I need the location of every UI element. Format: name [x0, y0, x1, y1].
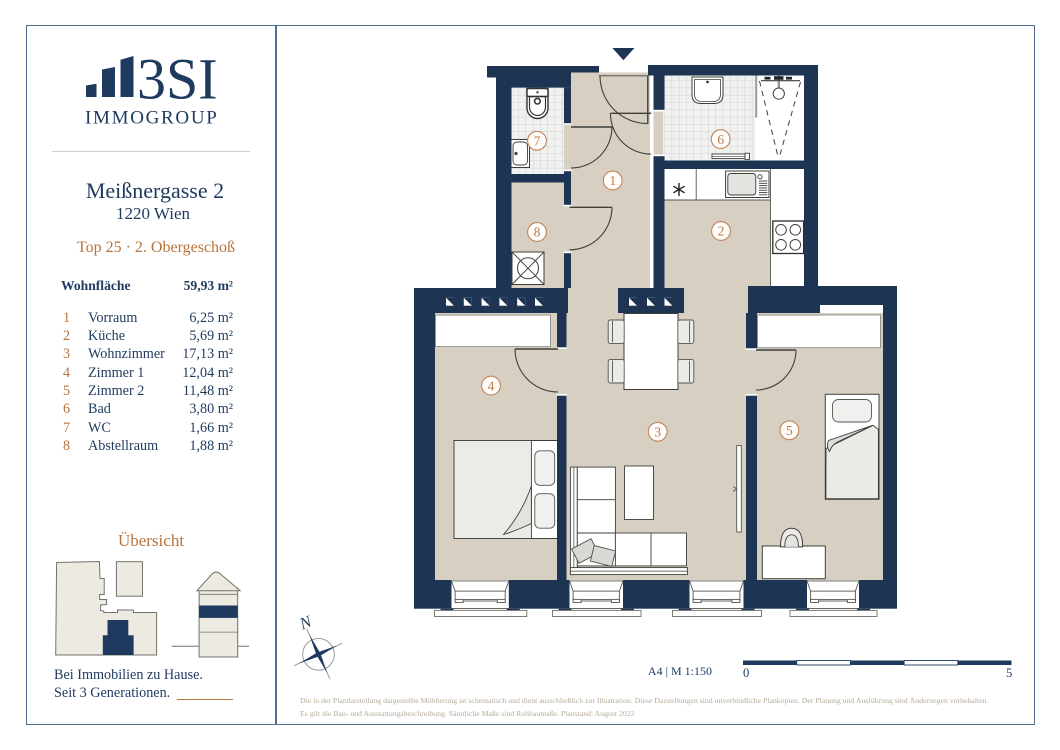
- svg-text:N: N: [296, 611, 315, 633]
